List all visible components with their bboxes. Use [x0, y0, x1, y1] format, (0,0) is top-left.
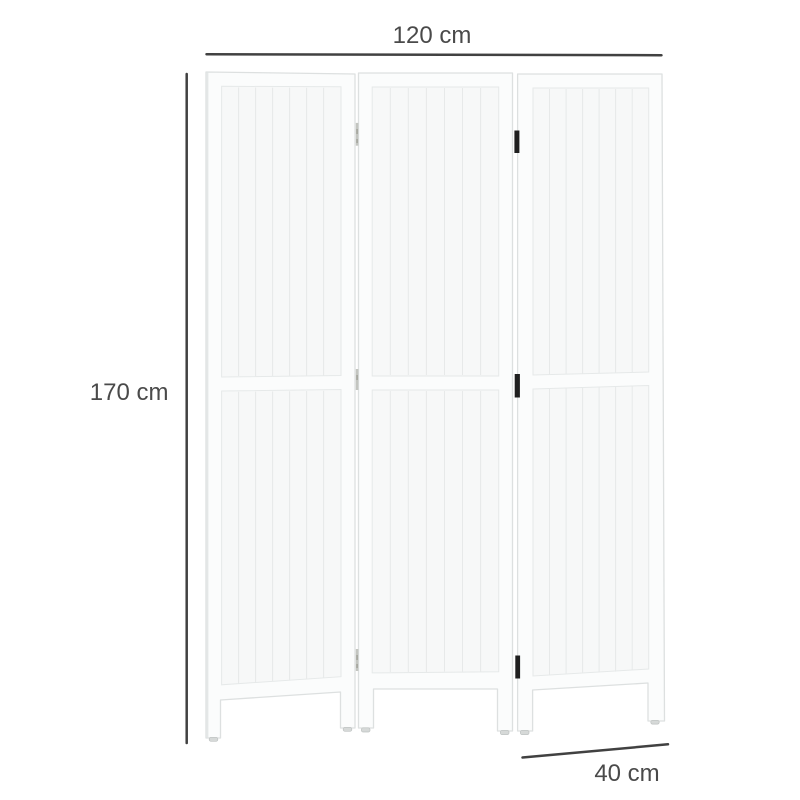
svg-text:170 cm: 170 cm	[90, 379, 169, 406]
svg-text:120 cm: 120 cm	[393, 22, 472, 49]
svg-text:40 cm: 40 cm	[594, 760, 659, 787]
